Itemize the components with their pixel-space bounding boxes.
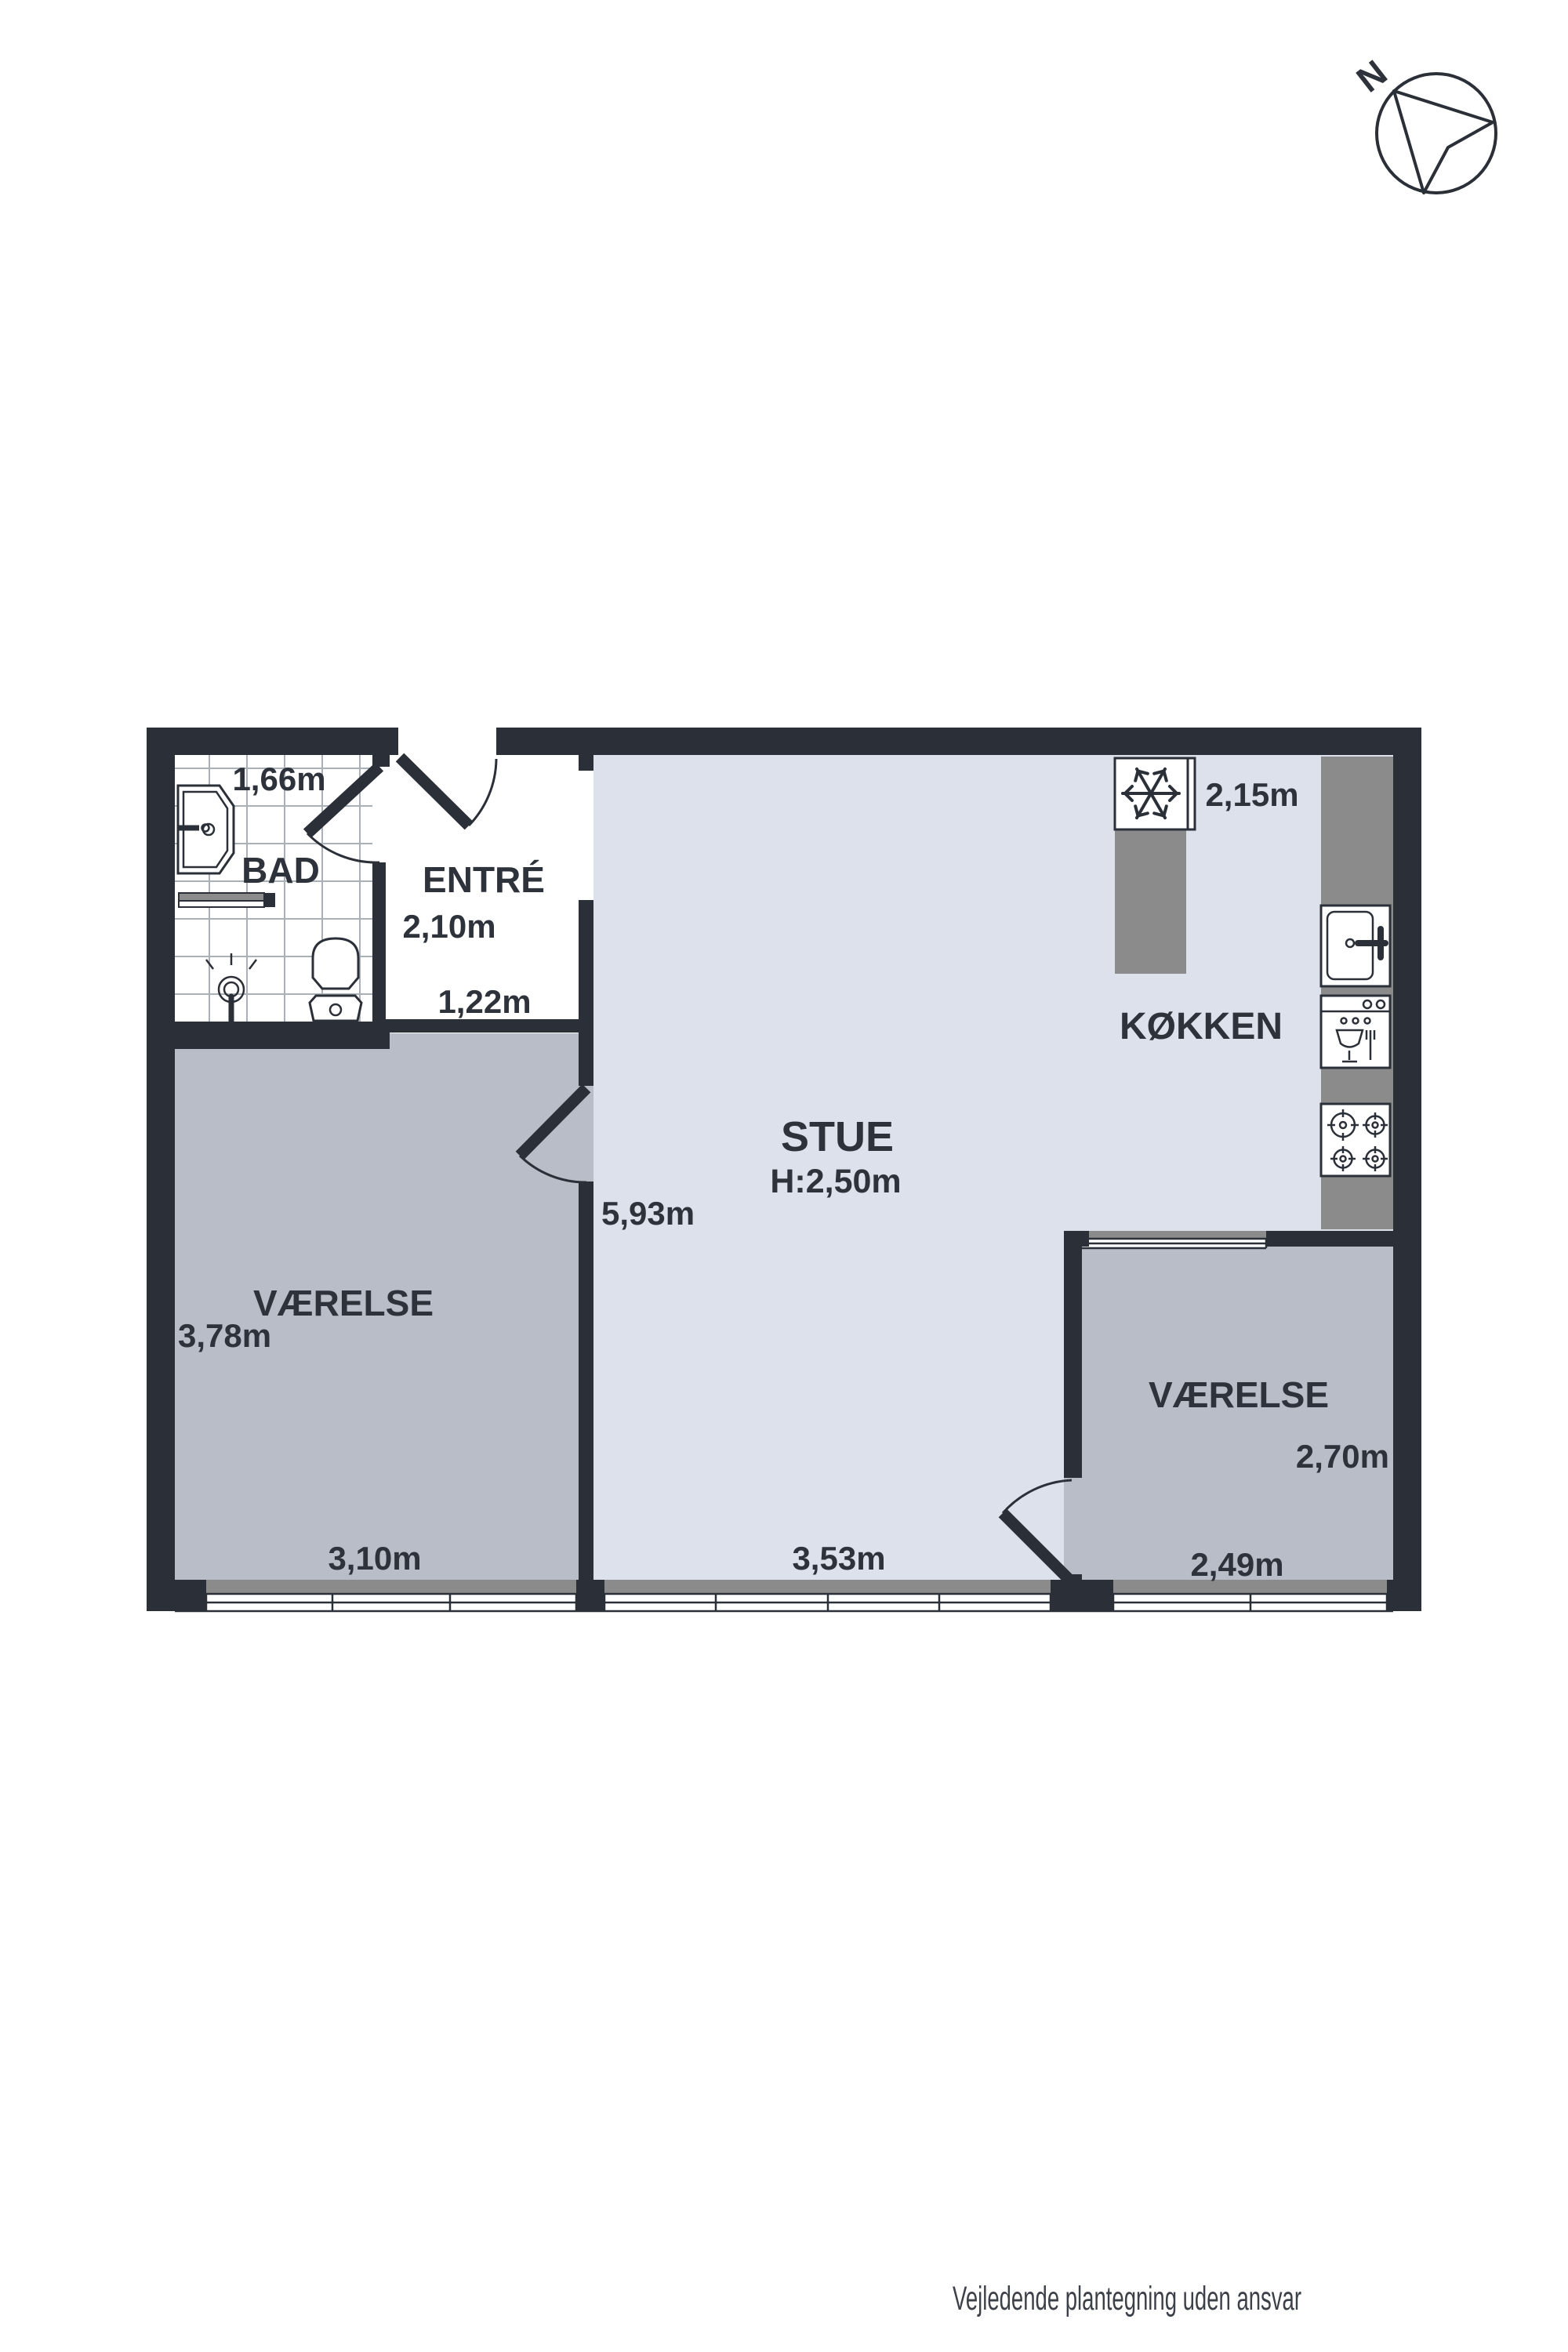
towel-rail-icon	[179, 893, 275, 907]
interior-window	[1082, 1231, 1266, 1248]
room-label-bad: BAD	[241, 850, 320, 891]
compass-icon: N	[1348, 52, 1496, 193]
dim-entre-depth: 1,22m	[437, 983, 531, 1020]
compass-north-label: N	[1348, 52, 1394, 100]
entrance-door	[400, 757, 496, 826]
dim-stue-height: H:2,50m	[770, 1163, 901, 1200]
footer-disclaimer: Vejledende plantegning uden ansvar	[953, 2280, 1301, 2318]
dim-bad-width: 1,66m	[232, 760, 325, 797]
shower-icon	[206, 953, 256, 1023]
bathroom-fixtures	[178, 786, 361, 1023]
dim-vaerelse-west-length: 3,78m	[178, 1317, 271, 1354]
sink-icon	[178, 786, 234, 873]
dim-vaerelse-south-width: 2,49m	[1190, 1546, 1283, 1583]
dim-vaerelse-south-length: 2,70m	[1296, 1438, 1389, 1475]
floorplan-page: N BAD 1,66m ENTRÉ 2,10m 1,22m STUE H:2,5…	[0, 0, 1568, 2352]
stove-icon	[1321, 1104, 1390, 1176]
room-label-vaerelse-south: VÆRELSE	[1149, 1374, 1329, 1415]
fridge-icon	[1115, 758, 1195, 829]
dim-stue-length: 5,93m	[601, 1195, 695, 1232]
dim-vaerelse-west-width: 3,10m	[328, 1540, 421, 1577]
dim-entre-width: 2,10m	[402, 908, 495, 945]
floorplan-drawing: N BAD 1,66m ENTRÉ 2,10m 1,22m STUE H:2,5…	[0, 0, 1568, 2352]
toilet-icon	[310, 938, 361, 1021]
kitchen-sink-icon	[1321, 906, 1390, 986]
room-label-entre: ENTRÉ	[423, 859, 545, 900]
dim-stue-width: 3,53m	[792, 1540, 885, 1577]
facade-windows	[175, 1580, 1393, 1611]
kitchen-island-counter	[1115, 829, 1186, 974]
room-label-koekken: KØKKEN	[1120, 1006, 1283, 1047]
room-label-vaerelse-west: VÆRELSE	[253, 1283, 434, 1323]
dishwasher-icon	[1321, 996, 1390, 1068]
dim-koekken-width: 2,15m	[1205, 776, 1298, 813]
room-label-stue: STUE	[781, 1113, 894, 1160]
